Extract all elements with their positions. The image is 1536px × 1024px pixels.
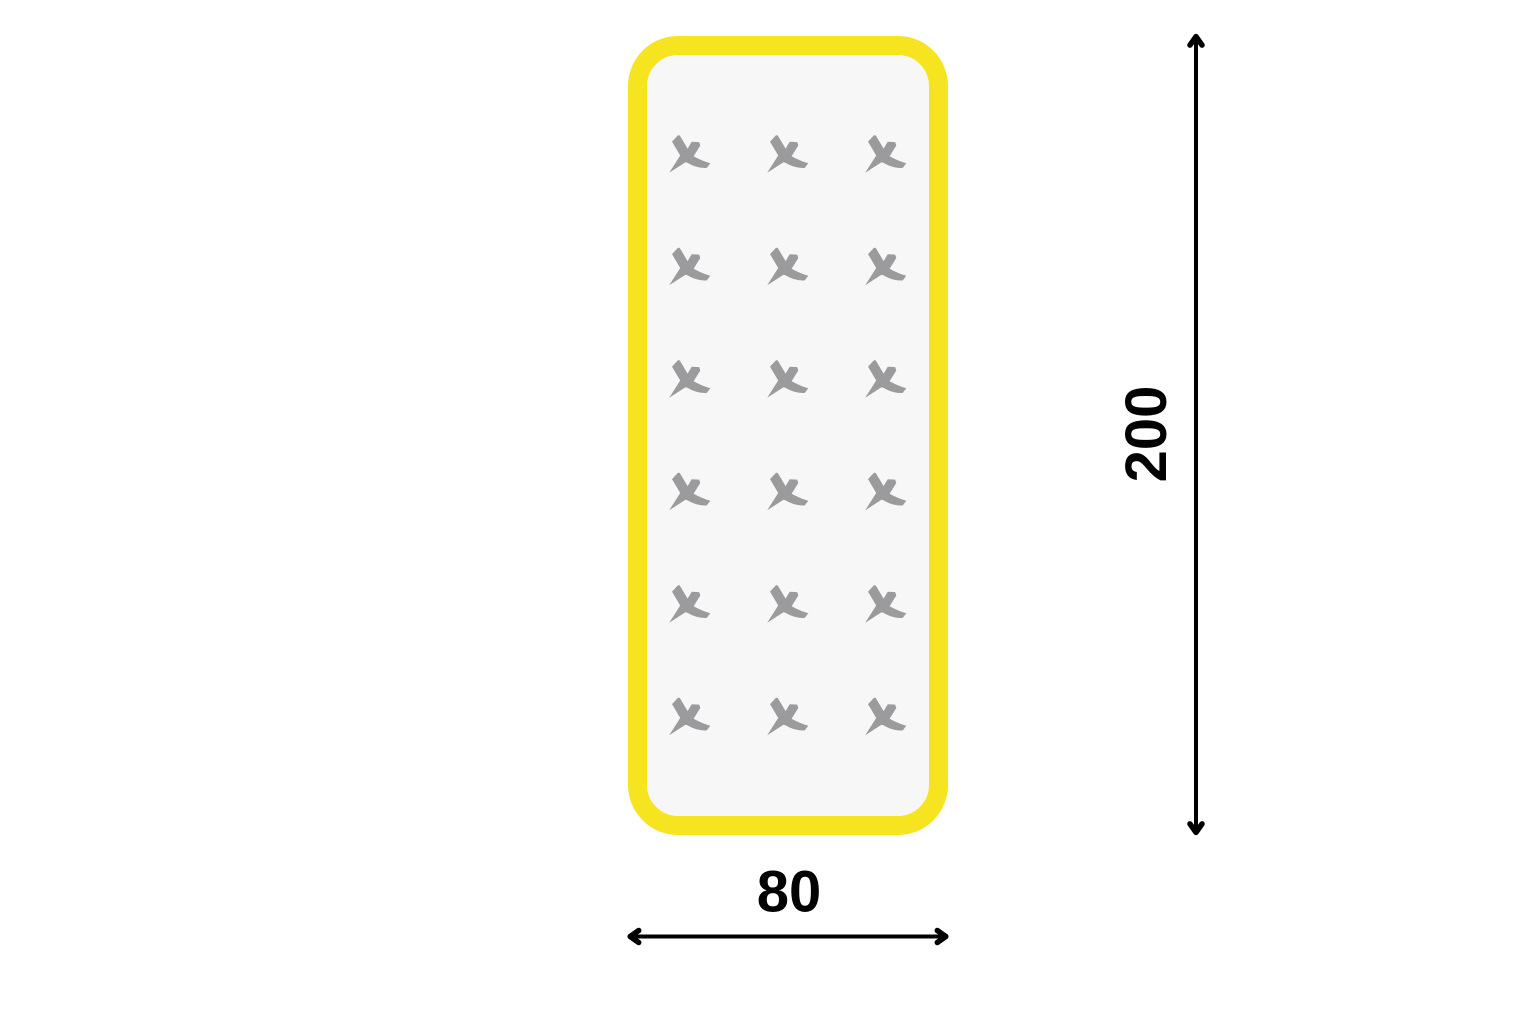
svg-text:200: 200 — [1114, 386, 1179, 483]
svg-text:80: 80 — [757, 860, 822, 925]
